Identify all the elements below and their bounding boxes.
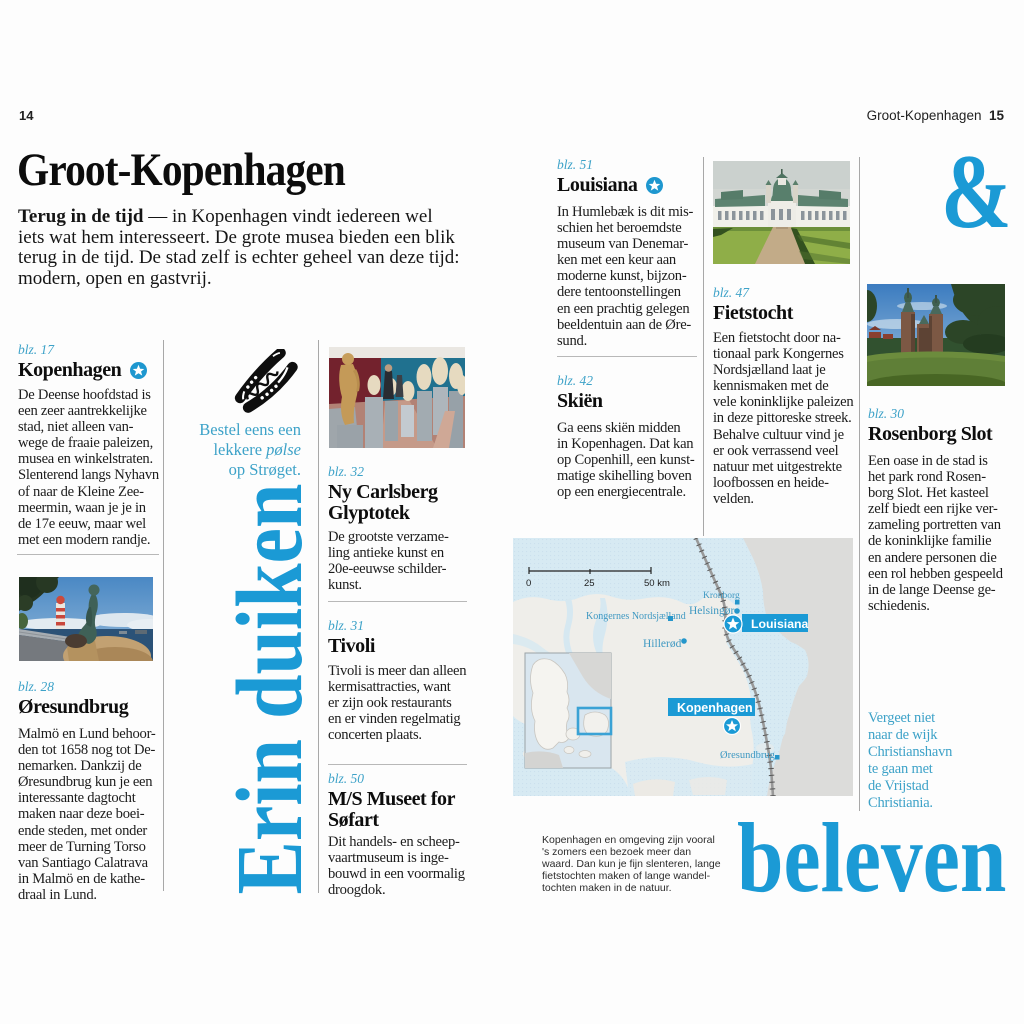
svg-text:Kopenhagen: Kopenhagen <box>677 701 753 715</box>
svg-text:25: 25 <box>584 578 595 589</box>
svg-text:50 km: 50 km <box>644 578 670 589</box>
svg-text:0: 0 <box>526 578 531 589</box>
svg-text:Øresundbrug: Øresundbrug <box>720 750 776 761</box>
svg-text:Kronborg: Kronborg <box>703 591 740 601</box>
svg-text:Louisiana: Louisiana <box>751 617 809 631</box>
svg-text:Hillerød: Hillerød <box>643 638 682 650</box>
svg-text:Helsingør: Helsingør <box>689 605 735 617</box>
